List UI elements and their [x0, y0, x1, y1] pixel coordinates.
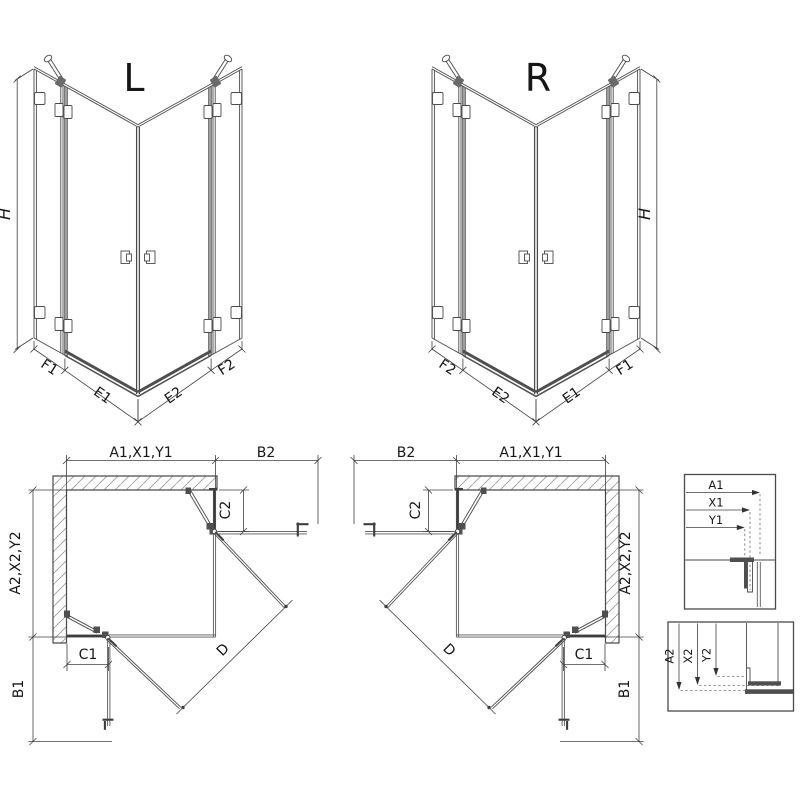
detail-a2-label: A2: [663, 648, 677, 663]
dim-b2-label-left-plan: B2: [257, 445, 276, 461]
dim-e1-label-right: E1: [560, 384, 584, 407]
arrowhead-y2: [713, 668, 718, 676]
wall-hatched-left-plan: [53, 476, 217, 643]
dim-d-label-left-plan: D: [214, 641, 233, 660]
shower-enclosure-spec-sheet: L H F1 E1 E2 F2 R H F2 E2 E1 F1 A1,X1,Y1…: [0, 0, 800, 800]
detail-x1-label: X1: [708, 496, 723, 510]
arrowhead-a2: [676, 682, 681, 690]
detail-y2-label: Y2: [700, 648, 714, 663]
iso-left-label: L: [123, 56, 144, 100]
dim-f2-label-right: F2: [436, 356, 459, 379]
arrowhead-a1: [752, 490, 760, 495]
iso-view-right: R H F2 E2 E1 F1: [429, 54, 661, 426]
technical-drawing: L H F1 E1 E2 F2 R H F2 E2 E1 F1 A1,X1,Y1…: [0, 0, 800, 800]
dim-b1-label-left-plan: B1: [11, 680, 27, 699]
detail-a1-label: A1: [708, 478, 723, 492]
dim-c1-label-left-plan: C1: [79, 647, 98, 663]
detail-x2-label: X2: [681, 648, 695, 663]
detail-box-width: A1 X1 Y1: [685, 475, 776, 610]
plan-view-left: A1,X1,Y1 B2 A2,X2,Y2 B1 C2 C1 D: [8, 445, 322, 745]
plan-view-right: B2 A1,X1,Y1 C2 A2,X2,Y2 B1 C1 D: [351, 445, 644, 745]
detail-box-depth: A2 X2 Y2: [663, 622, 794, 711]
iso-right-label: R: [525, 56, 551, 100]
height-dim-label-right: H: [635, 208, 654, 220]
dim-e2-label-right: E2: [488, 384, 512, 407]
dim-d-label-right-plan: D: [439, 641, 458, 660]
dim-a2x2y2-label-left-plan: A2,X2,Y2: [8, 531, 24, 594]
arrowhead-x2: [695, 677, 700, 685]
height-dim-label-left: H: [0, 208, 14, 220]
dim-a2x2y2-label-right-plan: A2,X2,Y2: [618, 531, 634, 594]
dim-b2-label-right-plan: B2: [397, 445, 416, 461]
dim-f1-label-right: F1: [613, 356, 636, 379]
dim-b1-label-right-plan: B1: [617, 680, 633, 699]
arrowhead-x1: [742, 507, 750, 512]
detail-y1-label: Y1: [708, 513, 723, 527]
dim-c2-label-right-plan: C2: [408, 501, 424, 520]
dim-f2-label-left: F2: [215, 356, 238, 379]
iso-view-left: L H F1 E1 E2 F2: [0, 54, 246, 426]
dim-a1x1y1-label-left-plan: A1,X1,Y1: [109, 445, 172, 461]
dim-f1-label-left: F1: [38, 356, 61, 379]
dim-c2-label-left-plan: C2: [218, 501, 234, 520]
dim-e1-label-left: E1: [90, 384, 114, 407]
arrowhead-y1: [737, 525, 745, 530]
dim-a1x1y1-label-right-plan: A1,X1,Y1: [499, 445, 562, 461]
dim-c1-label-right-plan: C1: [575, 647, 594, 663]
wall-hatched-right-plan: [455, 476, 619, 643]
dim-e2-label-left: E2: [162, 384, 186, 407]
